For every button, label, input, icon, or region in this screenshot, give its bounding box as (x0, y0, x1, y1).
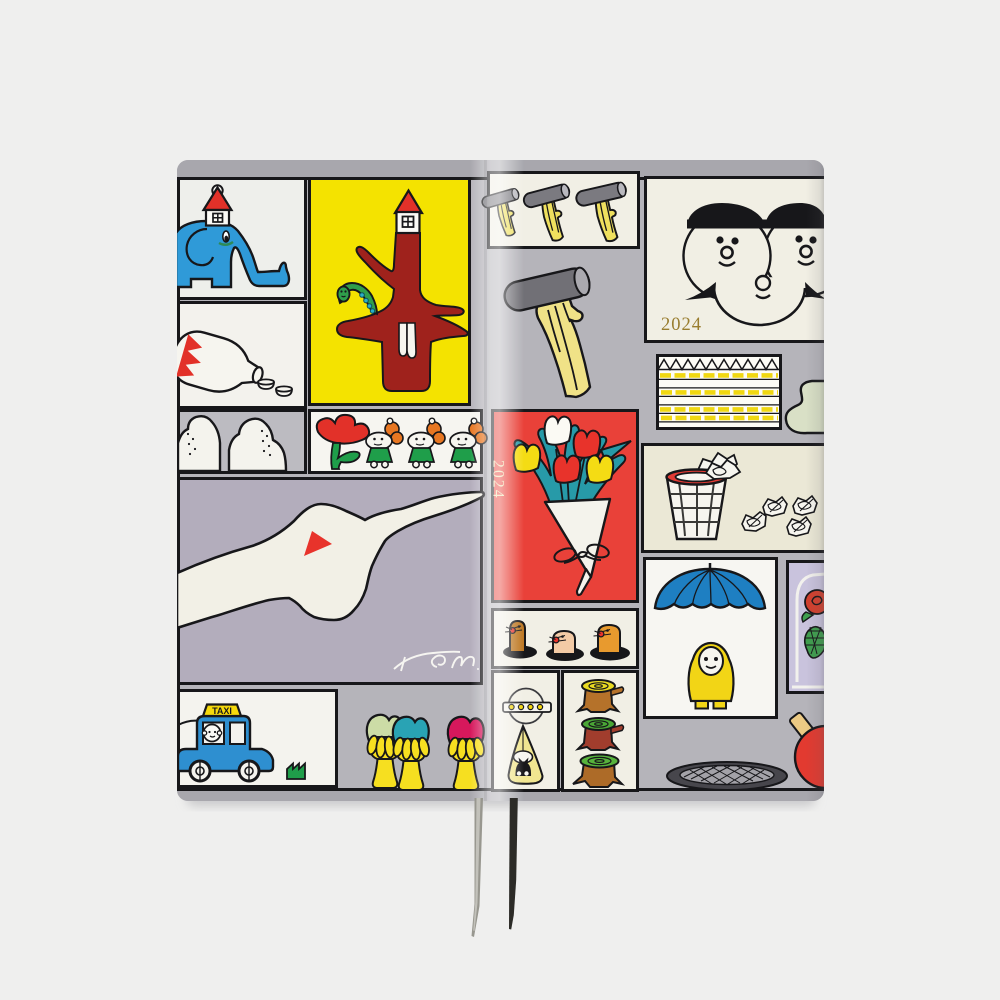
svg-text:TAXI: TAXI (212, 706, 232, 716)
svg-text:2024: 2024 (661, 315, 702, 335)
